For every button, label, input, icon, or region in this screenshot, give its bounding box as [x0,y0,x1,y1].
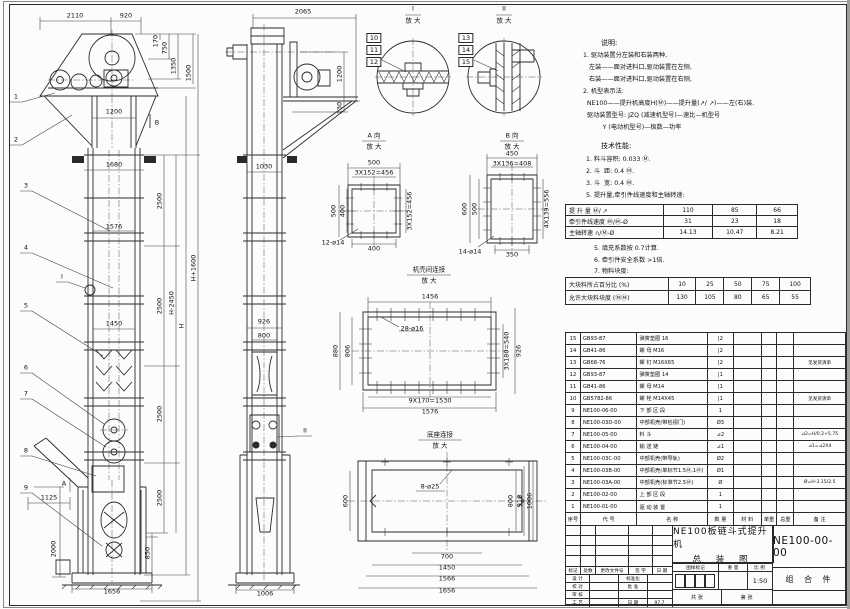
table-cell: 单重 [762,513,778,525]
dim-label: 600 [343,495,350,507]
dim-label: 放 大 [432,443,447,450]
table-cell: 螺 栓 M14X45 [637,393,708,404]
table-cell: |2 [708,357,734,368]
dim-label: 400 [340,205,347,217]
table-cell: NE100-05-00 [581,429,638,440]
stamp-boxes [672,571,719,590]
table-cell [734,465,762,476]
tech-lines-1: 1. 料斗容积: 0.033 Ⓜ.2. 斗 距: 0.4 Ⓜ.3. 斗 宽: 0… [586,154,685,202]
stamp-box [675,574,685,588]
dim-label: H-2450 [169,291,176,315]
table-cell: 主轴转速 ∩/Ⓜ-Ø [566,227,664,238]
drawing-title: NE100板链斗式提升机 总 装 图 [672,525,774,563]
table-cell: 设 计 [566,575,590,582]
table-cell: 名 称 [637,513,707,525]
dim-label: H [179,324,186,329]
dim-label: 1456 [422,294,439,301]
table-cell [777,333,794,344]
dim-label: 700 [441,554,453,561]
dim-label: 1006 [527,493,534,510]
dim-label: 1576 [106,224,123,231]
dim-label: A 向 [367,133,380,140]
table-row: 校 对批 准 [566,583,672,591]
table-cell [581,536,596,545]
table-row: 9NE100-06-00下 部 区 段1 [566,405,845,417]
callout-12: 12 [366,57,381,67]
lump-size-table: 大块料所占百分比 (%)10255075100允许大块料块度 (ⓂⓂ)13010… [565,277,811,305]
dim-label: 1450 [106,321,123,328]
table-cell [581,526,596,535]
table-cell: 序号 [566,513,581,525]
table-row: 15GB93-87弹簧垫圈 16|2 [566,333,845,345]
table-cell [653,536,671,545]
table-cell: 日 期 [619,599,648,607]
dim-label: 1680 [106,162,123,169]
dim-label: 1200 [337,66,344,83]
table-cell: 1 [708,489,734,500]
dim-label: 放 大 [421,278,436,285]
table-row: 8NE100-03D-00中部机壳(带检视门)Ø3 [566,417,845,429]
dim-label: 1656 [104,589,121,596]
note-line: 5. 提升量,牵引件线速度和主轴转速: [586,190,685,202]
table-cell: 见发货清单 [794,357,845,368]
table-cell [777,381,794,392]
dim-label: 500 [331,205,338,217]
table-row [566,536,672,546]
table-cell: 提 升 量 Ⓜ/ ↗ [566,205,664,215]
table-cell: 31 [664,216,714,226]
table-cell: 上 部 区 段 [637,489,708,500]
table-cell: ⊿2 [708,429,734,440]
table-cell [566,556,581,566]
table-cell [734,441,762,452]
table-cell: ⊿1 [708,441,734,452]
table-cell: NE100-03C-00 [581,453,638,464]
table-cell: 23 [713,216,757,226]
table-cell: 中部机壳(标准节2.5Ⓜ) [637,477,708,488]
table-cell [590,583,619,590]
table-cell [590,599,619,607]
table-cell [762,369,778,380]
table-cell: NE100-03A-00 [581,477,638,488]
table-cell: GB93-87 [581,369,638,380]
table-row: 12GB93-87弹簧垫圈 14|1 [566,369,845,381]
table-cell: 8.21 [757,227,797,238]
table-row: 11GB41-86螺 母 M14|1 [566,381,845,393]
table-row: 审 核 [566,591,672,599]
dim-label: 2065 [295,9,312,16]
table-cell [762,429,778,440]
table-row: 共 张第 张 [673,590,773,605]
table-cell: GB41-86 [581,345,638,356]
table-cell [734,489,762,500]
dim-label: 14-ø14 [459,249,482,256]
dim-label: 9 [24,485,28,492]
table-cell [794,381,845,392]
table-cell: Ø3 [708,417,734,428]
stamp-box [705,574,715,588]
table-cell: 6 [566,441,581,452]
table-cell [629,546,653,555]
table-cell: 弹簧垫圈 16 [637,333,708,344]
dim-label: 170 [153,35,160,47]
dim-label: 1200 [106,109,123,116]
table-cell: |2 [708,345,734,356]
table-cell [777,465,794,476]
table-cell [629,556,653,566]
table-row: 序号代 号名 称数 量材 料单重总重备 注 [566,513,845,525]
table-cell [794,405,845,416]
dim-label: 920 [120,13,132,20]
table-cell [762,465,778,476]
table-cell [629,536,653,545]
table-cell: Ø2 [708,453,734,464]
table-row: 3NE100-03A-00中部机壳(标准节2.5Ⓜ)ØØ=H-3.15/2.5 [566,477,845,489]
table-cell [794,333,845,344]
dim-label: A [62,481,66,488]
table-cell [762,357,778,368]
table-cell: 10 [566,393,581,404]
table-cell: 代 号 [581,513,638,525]
dim-label: 3X152=456 [355,170,394,177]
table-cell: NE100-03B-00 [581,465,638,476]
table-cell: 标准化 [619,575,648,582]
dim-label: 放 大 [405,18,420,25]
table-cell: 50 [724,278,752,290]
dim-label: 850 [145,547,152,559]
table-cell [653,546,671,555]
table-cell: Ø1 [708,465,734,476]
table-cell: 螺 钉 M16X65 [637,357,708,368]
note-line: 2. 斗 距: 0.4 Ⓜ. [586,166,685,178]
table-cell [762,333,778,344]
dim-label: I [61,274,63,281]
table-cell: 65 [752,291,780,304]
table-cell: GB5782-86 [581,393,638,404]
table-cell [648,575,671,582]
dim-label: 放 大 [496,18,511,25]
bom-header-row: 序号代 号名 称数 量材 料单重总重备 注 [565,512,846,526]
dim-label: 5 [24,303,28,310]
table-cell: 3 [566,477,581,488]
table-row [566,526,672,536]
table-cell: 螺 母 M16 [637,345,708,356]
table-cell: NE100-03D-00 [581,417,638,428]
table-cell: 4 [566,465,581,476]
dim-label: 400 [368,246,380,253]
dim-label: 2110 [67,13,84,20]
table-cell: 弹簧垫圈 14 [637,369,708,380]
callout-15: 15 [458,57,473,67]
table-cell [762,417,778,428]
table-row: 牵引件线速度 Ⓜ/Ⓜ-Ø312318 [566,216,797,227]
table-row: 10GB5782-86螺 栓 M14X45|1见发货清单 [566,393,845,405]
table-cell [596,526,629,535]
table-cell [734,429,762,440]
table-cell [777,417,794,428]
table-cell [734,369,762,380]
table-cell: |1 [708,381,734,392]
dim-label: 130 [337,102,344,114]
note-line: 2. 机型表示法: [583,86,754,98]
table-cell [777,453,794,464]
table-row: 2NE100-02-00上 部 区 段1 [566,489,845,501]
drawing-title-line2: 总 装 图 [693,553,754,564]
dim-label: B [155,120,159,127]
dim-label: 2500 [157,406,164,423]
dim-label: 1125 [41,495,58,502]
dim-label: 916 [517,495,524,507]
table-row [566,556,672,566]
table-cell [777,393,794,404]
dim-label: II [303,428,307,435]
table-cell: 共 张 [673,590,722,605]
table-cell: GB68-76 [581,357,638,368]
table-cell [762,393,778,404]
table-cell: 7 [566,429,581,440]
table-cell [619,591,648,598]
table-cell [762,453,778,464]
dim-label: 8-ø25 [421,484,440,491]
table-cell: 15 [566,333,581,344]
tech-lines-2: 5. 填充系数按 0.7计算.6. 牵引件安全系数 >1倍.7. 物料块度: [594,243,664,278]
dim-label: 1566 [439,576,456,583]
dim-label: 1030 [256,164,273,171]
note-line: 1. 料斗容积: 0.033 Ⓜ. [586,154,685,166]
table-cell [762,345,778,356]
table-cell: 10 [669,278,697,290]
dim-label: 28-ø16 [401,326,424,333]
dim-label: 500 [368,160,380,167]
dim-label: 2500 [157,193,164,210]
table-cell [566,526,581,535]
dim-label: 500 [472,203,479,215]
table-cell: 下 部 区 段 [637,405,708,416]
table-row: 大块料所占百分比 (%)10255075100 [566,278,810,291]
table-cell: 料 斗 [637,429,708,440]
table-row: 工 艺日 期97.7 [566,599,672,607]
table-cell: 输 送 链 [637,441,708,452]
table-cell [777,441,794,452]
table-cell: 8 [566,417,581,428]
table-cell: 13 [566,357,581,368]
dim-label: 机壳间连接 [413,267,446,274]
table-cell: 校 对 [566,583,590,590]
table-cell [566,536,581,545]
scale-value: 1:50 [747,571,773,590]
table-cell [596,536,629,545]
drawing-sheet: 2110920120017075013501500123456789BIA168… [0,0,850,609]
table-cell [653,556,671,566]
table-cell [648,583,671,590]
stamp-box [685,574,695,588]
dim-label: 3X180=540 [504,332,511,371]
table-cell: 见发货清单 [794,393,845,404]
table-cell: |2 [708,333,734,344]
table-row: 5NE100-03C-00中部机壳(带导轨)Ø2 [566,453,845,465]
dim-label: 底座连接 [427,432,453,439]
note-line: 3. 斗 宽: 0.4 Ⓜ. [586,178,685,190]
drawing-number: NE100-00-00 [772,525,847,568]
table-cell: 97.7 [648,599,671,607]
dim-label: 2000 [51,541,58,558]
table-cell: 总重 [777,513,794,525]
dim-label: 2500 [157,298,164,315]
empty-cell [772,590,847,606]
dim-label: 1 [14,94,18,101]
table-cell: 130 [669,291,697,304]
table-cell [734,405,762,416]
table-cell: 18 [757,216,797,226]
weight-cell [718,571,748,590]
table-cell [734,333,762,344]
note-line: 右装——面对进料口,驱动装置在右侧, [583,74,754,86]
table-cell: NE100-02-00 [581,489,638,500]
dim-label: 9X170=1530 [409,398,452,405]
dim-label: 12-ø14 [322,240,345,247]
dim-label: 750 [162,42,169,54]
table-cell: 85 [713,205,757,215]
dim-label: 1656 [439,588,456,595]
notes-title: 说明: [601,38,617,48]
table-cell [590,591,619,598]
table-cell: 批 准 [619,583,648,590]
table-cell [734,393,762,404]
table-cell [777,369,794,380]
table-cell: 105 [696,291,724,304]
table-cell: 材 料 [734,513,762,525]
table-cell: 第 张 [722,590,771,605]
table-row [566,546,672,556]
table-cell: 2 [566,489,581,500]
table-cell [777,345,794,356]
capacity-speed-table: 提 升 量 Ⓜ/ ↗1108566牵引件线速度 Ⓜ/Ⓜ-Ø312318主轴转速 … [565,204,798,239]
table-cell [581,556,596,566]
drawing-title-line1: NE100板链斗式提升机 [673,525,773,550]
table-cell [566,546,581,555]
table-cell: GB93-87 [581,333,638,344]
table-cell: 66 [757,205,797,215]
table-cell: |1 [708,393,734,404]
table-cell: 数 量 [708,513,734,525]
callout-10: 10 [366,33,381,43]
table-cell [648,591,671,598]
table-cell: 1 [708,405,734,416]
table-cell: 允许大块料块度 (ⓂⓂ) [566,291,669,304]
table-cell [777,477,794,488]
table-cell: 大块料所占百分比 (%) [566,278,669,290]
dim-label: 806 [345,345,352,357]
table-cell [581,546,596,555]
dim-label: 1006 [257,591,274,598]
table-cell [777,489,794,500]
dim-label: 800 [508,495,515,507]
notes-block: 1. 驱动装置分左装和右装两种, 左装——面对进料口,驱动装置在左侧, 右装——… [583,50,754,134]
table-row: 允许大块料块度 (ⓂⓂ)130105806555 [566,291,810,304]
table-cell: 80 [724,291,752,304]
stamp-box [695,574,705,588]
table-cell [794,345,845,356]
dim-label: 800 [258,333,270,340]
dim-label: 3X136=408 [493,161,532,168]
table-cell [777,429,794,440]
dim-label: 3 [24,183,28,190]
table-cell [734,453,762,464]
dim-label: 7 [24,391,28,398]
tech-title: 技术性能: [601,141,631,151]
table-cell: 14 [566,345,581,356]
dim-label: 放 大 [366,144,381,151]
table-row: 7NE100-05-00料 斗⊿2⊿2=H/0.2+5.75 [566,429,845,441]
bom-table: 15GB93-87弹簧垫圈 16|214GB41-86螺 母 M16|213GB… [565,332,846,513]
callout-14: 14 [458,45,473,55]
dim-label: 6 [24,365,28,372]
table-cell [734,417,762,428]
table-cell [794,489,845,500]
table-cell [734,381,762,392]
table-cell [762,441,778,452]
table-cell [794,369,845,380]
note-line: 7. 物料块度: [594,266,664,278]
table-row: 13GB68-76螺 钉 M16X65|2见发货清单 [566,357,845,369]
table-row: 提 升 量 Ⓜ/ ↗1108566 [566,205,797,216]
table-cell: 55 [780,291,810,304]
table-cell [794,465,845,476]
table-cell: ⊿1=⊿2X4 [794,441,845,452]
dim-label: 926 [258,319,270,326]
table-row: 6NE100-04-00输 送 链⊿1⊿1=⊿2X4 [566,441,845,453]
table-cell [629,526,653,535]
table-cell: 110 [664,205,714,215]
sheet-count-row: 共 张第 张 [673,589,773,605]
revision-grid [566,526,673,566]
table-cell [794,417,845,428]
callout-13: 13 [458,33,473,43]
signature-rows: 设 计标准化校 对批 准审 核工 艺日 期97.7 [566,574,673,607]
table-cell [653,526,671,535]
table-cell: Ø=H-3.15/2.5 [794,477,845,488]
note-line: 5. 填充系数按 0.7计算. [594,243,664,255]
table-cell: 5 [566,453,581,464]
part-type: 组 合 件 [772,567,847,591]
table-cell [762,489,778,500]
table-cell: NE100-04-00 [581,441,638,452]
table-cell [762,477,778,488]
table-row: 设 计标准化 [566,575,672,583]
table-cell [734,345,762,356]
table-cell [762,405,778,416]
table-cell: 9 [566,405,581,416]
table-cell: 牵引件线速度 Ⓜ/Ⓜ-Ø [566,216,664,226]
dim-label: 8 [24,448,28,455]
note-line: NE100——提升机高度H(Ⓜ)——提升量(↗/ ↗)——左(右)装. [583,98,754,110]
table-cell: 中部机壳(带导轨) [637,453,708,464]
table-cell: Ø [708,477,734,488]
table-cell: 中部机壳(单标节1.5Ⓜ,1Ⓜ) [637,465,708,476]
table-cell: 100 [780,278,810,290]
dim-label: B 向 [505,133,518,140]
dim-label: 4 [24,245,28,252]
note-line: 6. 牵引件安全系数 >1倍. [594,255,664,267]
table-cell: 11 [566,381,581,392]
table-row: 14GB41-86螺 母 M16|2 [566,345,845,357]
table-cell: ⊿2=H/0.2+5.75 [794,429,845,440]
table-cell: 14.13 [664,227,714,238]
table-cell: 螺 母 M14 [637,381,708,392]
table-cell [734,357,762,368]
table-cell [777,357,794,368]
table-row: 主轴转速 ∩/Ⓜ-Ø14.1310.478.21 [566,227,797,238]
